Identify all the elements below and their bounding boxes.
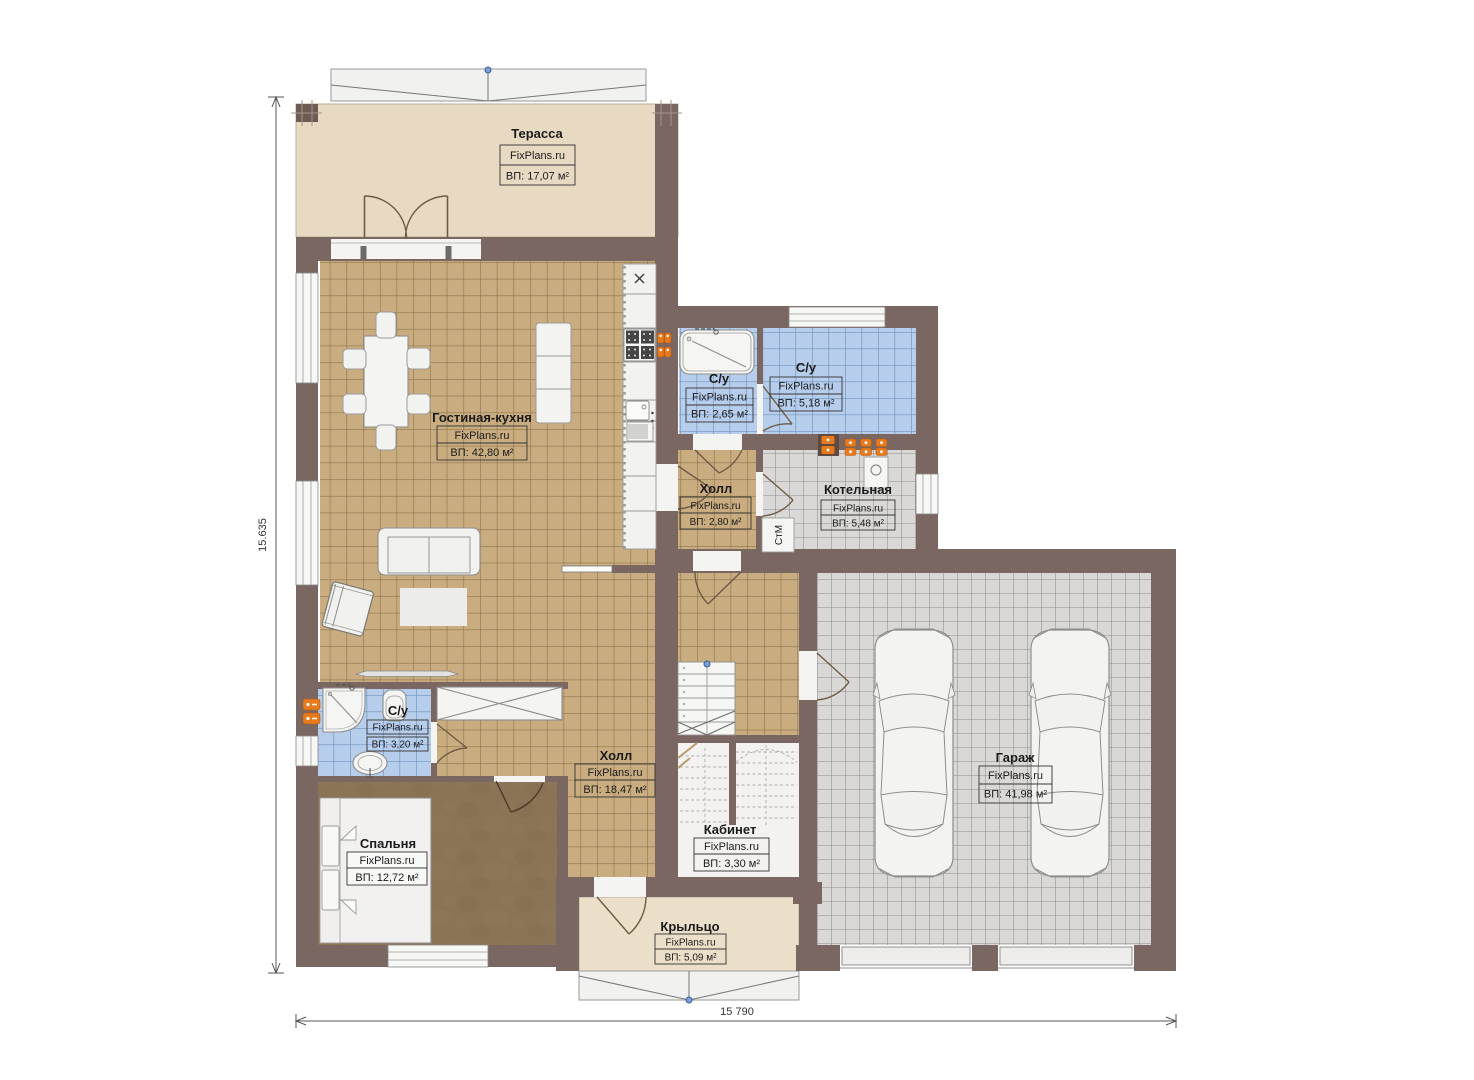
svg-text:СтМ: СтМ <box>774 525 785 545</box>
svg-text:С/у: С/у <box>709 371 730 386</box>
svg-text:Кабинет: Кабинет <box>704 822 757 837</box>
svg-text:FixPlans.ru: FixPlans.ru <box>690 501 740 512</box>
svg-text:FixPlans.ru: FixPlans.ru <box>833 504 883 515</box>
svg-text:Гостиная-кухня: Гостиная-кухня <box>432 410 532 425</box>
svg-text:ВП: 3,20 м²: ВП: 3,20 м² <box>372 740 425 751</box>
svg-text:FixPlans.ru: FixPlans.ru <box>372 723 422 734</box>
svg-text:FixPlans.ru: FixPlans.ru <box>704 841 759 853</box>
svg-text:FixPlans.ru: FixPlans.ru <box>359 855 414 867</box>
svg-text:FixPlans.ru: FixPlans.ru <box>665 938 715 949</box>
svg-text:FixPlans.ru: FixPlans.ru <box>587 767 642 779</box>
svg-text:FixPlans.ru: FixPlans.ru <box>510 150 565 162</box>
svg-text:FixPlans.ru: FixPlans.ru <box>778 381 833 393</box>
svg-text:ВП: 2,65 м²: ВП: 2,65 м² <box>691 409 748 421</box>
svg-text:С/у: С/у <box>388 703 409 718</box>
svg-text:15 790: 15 790 <box>720 1006 754 1018</box>
svg-text:ВП: 5,18 м²: ВП: 5,18 м² <box>777 398 834 410</box>
svg-text:ВП: 41,98 м²: ВП: 41,98 м² <box>984 789 1048 801</box>
svg-text:ВП: 42,80 м²: ВП: 42,80 м² <box>450 447 514 459</box>
svg-text:15.635: 15.635 <box>257 518 269 552</box>
svg-text:Спальня: Спальня <box>360 836 416 851</box>
svg-text:ВП: 2,80 м²: ВП: 2,80 м² <box>690 517 743 528</box>
svg-text:ВП: 5,09 м²: ВП: 5,09 м² <box>665 953 718 964</box>
svg-text:Терасса: Терасса <box>511 126 563 141</box>
svg-text:FixPlans.ru: FixPlans.ru <box>454 430 509 442</box>
svg-text:FixPlans.ru: FixPlans.ru <box>692 392 747 404</box>
svg-text:ВП: 18,47 м²: ВП: 18,47 м² <box>583 784 647 796</box>
svg-text:ВП: 12,72 м²: ВП: 12,72 м² <box>355 872 419 884</box>
svg-text:FixPlans.ru: FixPlans.ru <box>988 770 1043 782</box>
svg-text:Крыльцо: Крыльцо <box>660 919 719 934</box>
svg-text:Холл: Холл <box>600 748 633 763</box>
svg-text:Гараж: Гараж <box>996 750 1036 765</box>
svg-text:С/у: С/у <box>796 360 817 375</box>
svg-text:Холл: Холл <box>700 481 733 496</box>
svg-text:ВП: 3,30 м²: ВП: 3,30 м² <box>703 858 760 870</box>
svg-text:Котельная: Котельная <box>824 482 892 497</box>
svg-text:ВП: 5,48 м²: ВП: 5,48 м² <box>832 519 885 530</box>
svg-text:ВП: 17,07 м²: ВП: 17,07 м² <box>506 171 570 183</box>
